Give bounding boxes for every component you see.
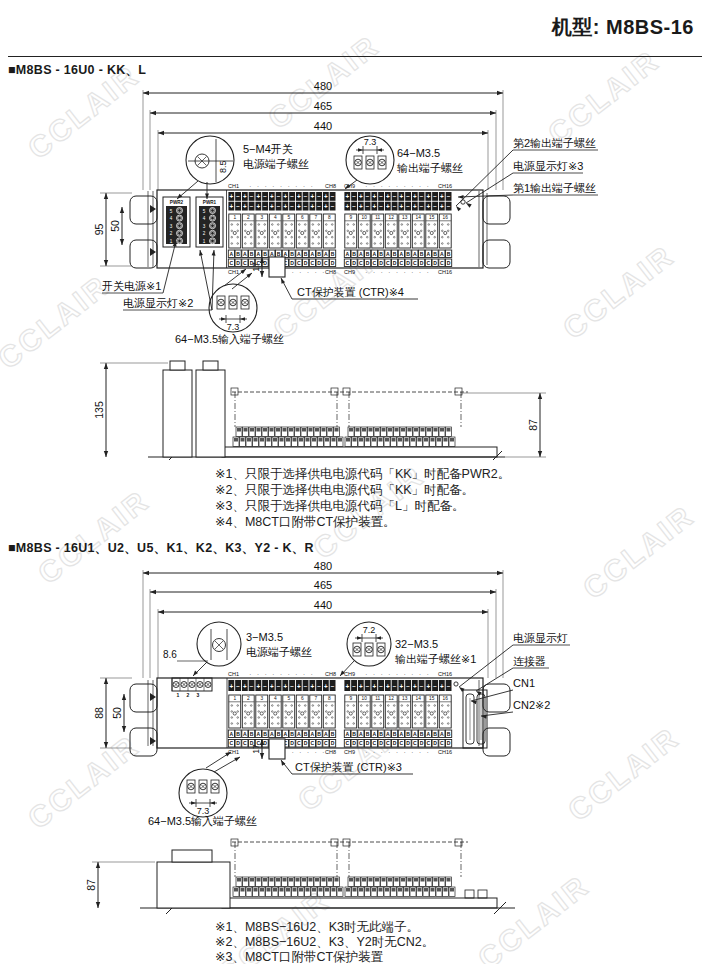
svg-text:+: + (373, 683, 377, 690)
svg-text:5: 5 (287, 696, 290, 701)
svg-text:D: D (352, 740, 356, 746)
svg-text:−: − (290, 203, 294, 210)
svg-text:D: D (263, 740, 267, 746)
svg-text:C: C (440, 260, 444, 266)
svg-text:B: B (304, 251, 308, 257)
svg-text:4: 4 (170, 216, 173, 221)
note-line: ※1、只限于选择供电电源代码「KK」时配备PWR2。 (215, 466, 510, 482)
svg-text:+: + (324, 683, 328, 690)
svg-text:−: − (263, 193, 267, 200)
svg-text:CH8: CH8 (325, 749, 336, 755)
svg-text:CH16: CH16 (438, 749, 452, 755)
svg-text:A: A (359, 251, 363, 257)
svg-text:CH8: CH8 (325, 671, 336, 677)
svg-text:−: − (447, 683, 451, 690)
svg-text:PWR2: PWR2 (170, 200, 184, 205)
svg-text:+: + (359, 203, 363, 210)
svg-text:电源端子螺丝: 电源端子螺丝 (243, 158, 309, 170)
svg-text:−: − (420, 193, 424, 200)
svg-text:−: − (236, 203, 240, 210)
svg-text:−: − (304, 203, 308, 210)
svg-text:−: − (420, 683, 424, 690)
svg-text:+: + (297, 683, 301, 690)
svg-text:A: A (324, 731, 328, 737)
svg-text:B: B (331, 251, 335, 257)
dim-label: 8.6 (163, 649, 177, 660)
svg-text:C: C (400, 740, 404, 746)
svg-text:B: B (393, 731, 397, 737)
svg-text:A: A (413, 251, 417, 257)
svg-text:14: 14 (416, 696, 422, 701)
svg-text:−: − (352, 683, 356, 690)
svg-text:−: − (447, 203, 451, 210)
svg-text:4: 4 (274, 696, 277, 701)
svg-text:输出端子螺丝: 输出端子螺丝 (397, 162, 463, 174)
svg-text:B: B (379, 731, 383, 737)
svg-text:+: + (230, 203, 234, 210)
svg-text:A: A (257, 251, 261, 257)
svg-text:+: + (230, 683, 234, 690)
svg-text:+: + (400, 203, 404, 210)
svg-text:D: D (290, 740, 294, 746)
dim-label: 87 (527, 419, 539, 431)
note-line: ※3、只限于选择供电电源代码「L」时配备。 (215, 498, 510, 514)
svg-text:D: D (331, 740, 335, 746)
svg-text:B: B (236, 251, 240, 257)
svg-text:−: − (304, 683, 308, 690)
channel-area: +−+−+−+−+−+−+−+−12345678ABABABABABABABAB… (228, 680, 451, 747)
svg-text:+: + (346, 203, 350, 210)
svg-text:B: B (433, 251, 437, 257)
svg-text:CH16: CH16 (438, 183, 452, 189)
svg-text:B: B (433, 731, 437, 737)
label-cn1: CN1 (513, 677, 535, 689)
svg-text:B: B (290, 731, 294, 737)
svg-text:· · · · · · · · ·: · · · · · · · · · (365, 749, 430, 755)
dim-label: 87 (85, 879, 97, 891)
svg-text:−: − (393, 683, 397, 690)
svg-text:CH9: CH9 (344, 749, 355, 755)
svg-text:A: A (230, 731, 234, 737)
svg-text:11: 11 (375, 215, 380, 220)
header-rule (8, 56, 702, 57)
svg-text:+: + (270, 203, 274, 210)
svg-text:−: − (263, 203, 267, 210)
svg-text:−: − (317, 203, 321, 210)
callout-power-screws: 8.63−M3.5电源端子螺丝 (163, 622, 312, 677)
svg-text:A: A (311, 731, 315, 737)
svg-text:−: − (366, 683, 370, 690)
svg-text:8: 8 (328, 696, 331, 701)
svg-text:D: D (366, 740, 370, 746)
front-view: PWR254321PWR154321+−+−+−+−+−+−+−+−+−+−+−… (130, 183, 510, 275)
svg-text:5: 5 (170, 209, 173, 214)
svg-text:−: − (331, 683, 335, 690)
svg-text:B: B (379, 251, 383, 257)
svg-text:D: D (379, 260, 383, 266)
section1-notes: ※1、只限于选择供电电源代码「KK」时配备PWR2。 ※2、只限于选择供电电源代… (215, 466, 510, 530)
svg-text:D: D (406, 740, 410, 746)
svg-text:B: B (304, 731, 308, 737)
svg-text:B: B (236, 731, 240, 737)
right-labels: 第2输出端子螺丝电源显示灯※3第1输出端子螺丝 (455, 137, 598, 211)
svg-text:· · · · ·: · · · · · (292, 749, 327, 755)
dim-label: 7.3 (227, 322, 240, 332)
dim-label: 440 (314, 120, 332, 132)
svg-text:8: 8 (328, 215, 331, 220)
svg-text:A: A (230, 251, 234, 257)
svg-text:A: A (243, 731, 247, 737)
svg-text:1: 1 (233, 696, 236, 701)
svg-text:−: − (379, 193, 383, 200)
svg-text:7: 7 (314, 215, 317, 220)
dim-label: 480 (314, 560, 332, 572)
svg-text:D: D (379, 740, 383, 746)
svg-text:D: D (331, 260, 335, 266)
svg-text:+: + (311, 683, 315, 690)
svg-text:2: 2 (203, 231, 206, 236)
svg-text:A: A (297, 731, 301, 737)
svg-text:−: − (379, 203, 383, 210)
power-terminal-strip: 123 (172, 678, 212, 698)
svg-text:D: D (352, 260, 356, 266)
svg-text:−: − (317, 683, 321, 690)
svg-text:C: C (243, 260, 247, 266)
svg-text:B: B (352, 251, 356, 257)
svg-text:3: 3 (260, 215, 263, 220)
svg-text:+: + (257, 203, 261, 210)
svg-text:A: A (427, 251, 431, 257)
svg-text:A: A (386, 251, 390, 257)
svg-text:−: − (331, 193, 335, 200)
svg-text:D: D (406, 260, 410, 266)
callout-switch-power-screws: 8.55−M4开关电源端子螺丝 (176, 136, 309, 200)
svg-text:CH1: CH1 (228, 671, 239, 677)
svg-text:C: C (230, 260, 234, 266)
svg-text:电源端子螺丝: 电源端子螺丝 (246, 646, 312, 658)
svg-text:A: A (243, 251, 247, 257)
svg-text:A: A (270, 731, 274, 737)
dim-95: 95 (93, 193, 108, 266)
svg-text:D: D (290, 260, 294, 266)
svg-text:14: 14 (416, 215, 422, 220)
svg-text:−: − (250, 683, 254, 690)
svg-text:B: B (352, 731, 356, 737)
svg-text:16: 16 (443, 696, 449, 701)
svg-text:2: 2 (187, 692, 190, 698)
svg-text:CT保护装置 (CTR)※4: CT保护装置 (CTR)※4 (297, 286, 404, 298)
svg-text:+: + (230, 193, 234, 200)
svg-text:B: B (406, 251, 410, 257)
svg-text:C: C (386, 260, 390, 266)
svg-text:A: A (257, 731, 261, 737)
dim-label: 7.2 (363, 625, 376, 635)
svg-text:+: + (427, 683, 431, 690)
svg-text:+: + (413, 193, 417, 200)
label-cn2: CN2※2 (513, 699, 550, 711)
svg-text:+: + (359, 683, 363, 690)
svg-text:−: − (433, 683, 437, 690)
svg-text:−: − (236, 193, 240, 200)
section2-notes: ※1、M8BS−16U2、K3时无此端子。 ※2、M8BS−16U2、K3、Y2… (215, 920, 434, 964)
svg-text:C: C (324, 260, 328, 266)
svg-text:CH16: CH16 (438, 671, 452, 677)
dim-label: 7.3 (364, 137, 377, 147)
svg-text:C: C (386, 740, 390, 746)
svg-text:3: 3 (260, 696, 263, 701)
svg-text:3: 3 (170, 224, 173, 229)
svg-text:D: D (366, 260, 370, 266)
svg-text:C: C (346, 260, 350, 266)
svg-text:7: 7 (314, 696, 317, 701)
svg-text:A: A (373, 251, 377, 257)
svg-text:13: 13 (402, 215, 408, 220)
svg-text:−: − (304, 193, 308, 200)
svg-text:64−M3.5: 64−M3.5 (397, 147, 440, 159)
label-output1-screws: 第1输出端子螺丝 (513, 182, 596, 194)
svg-text:−: − (420, 203, 424, 210)
svg-text:B: B (393, 251, 397, 257)
svg-text:12: 12 (389, 696, 395, 701)
svg-text:C: C (297, 260, 301, 266)
svg-text:D: D (393, 260, 397, 266)
svg-text:D: D (393, 740, 397, 746)
datasheet-page: CCLAIRCCLAIRCCLAIRCCLAIRCCLAIRCCLAIRCCLA… (0, 0, 710, 964)
svg-text:CH1: CH1 (228, 749, 239, 755)
svg-text:C: C (230, 740, 234, 746)
svg-text:B: B (366, 251, 370, 257)
svg-text:D: D (317, 260, 321, 266)
svg-text:+: + (311, 203, 315, 210)
svg-text:C: C (297, 740, 301, 746)
svg-text:+: + (284, 203, 288, 210)
svg-text:−: − (433, 193, 437, 200)
svg-text:· · · · · · · · ·: · · · · · · · · · (249, 671, 314, 677)
dim-label: 135 (93, 401, 105, 419)
svg-text:C: C (427, 740, 431, 746)
svg-text:B: B (277, 731, 281, 737)
svg-text:+: + (440, 683, 444, 690)
svg-text:−: − (263, 683, 267, 690)
svg-text:B: B (250, 251, 254, 257)
label-output2-screws: 第2输出端子螺丝 (513, 137, 596, 149)
dim-50b: 50 (111, 694, 126, 732)
svg-text:D: D (317, 740, 321, 746)
svg-text:−: − (379, 683, 383, 690)
pwr-block: PWR254321 (163, 197, 190, 247)
dim-label: 88 (93, 707, 105, 719)
label-power-lamp2: 电源显示灯※2 (123, 297, 193, 309)
svg-text:· · · · · · · · ·: · · · · · · · · · (249, 183, 314, 189)
svg-text:C: C (373, 740, 377, 746)
svg-text:A: A (440, 251, 444, 257)
pwr-block: PWR154321 (196, 197, 223, 247)
drawing-m8bs-16u1: 480465440123+−+−+−+−+−+−+−+−12345678ABAB… (0, 558, 710, 920)
side-view (140, 839, 515, 914)
svg-text:+: + (270, 193, 274, 200)
label-switch-power: 开关电源※1 (102, 280, 161, 292)
svg-text:A: A (324, 251, 328, 257)
svg-text:+: + (400, 193, 404, 200)
svg-text:A: A (400, 251, 404, 257)
svg-text:−: − (317, 193, 321, 200)
svg-text:−: − (250, 203, 254, 210)
left-labels: 开关电源※1电源显示灯※2 (102, 240, 216, 310)
callout-output-screws: 7.232−M3.5输出端子螺丝※1 (338, 622, 476, 677)
dim-label: 17 (251, 262, 261, 272)
svg-text:C: C (440, 740, 444, 746)
svg-text:+: + (346, 193, 350, 200)
svg-text:3: 3 (203, 224, 206, 229)
svg-text:C: C (311, 260, 315, 266)
svg-text:C: C (427, 260, 431, 266)
svg-text:A: A (270, 251, 274, 257)
section1-title: ■M8BS - 16U0 - KK、L (8, 62, 146, 79)
svg-text:A: A (413, 731, 417, 737)
svg-text:CH9: CH9 (344, 671, 355, 677)
svg-text:B: B (420, 251, 424, 257)
svg-text:15: 15 (429, 215, 435, 220)
svg-text:1: 1 (203, 239, 206, 244)
svg-text:A: A (386, 731, 390, 737)
svg-text:−: − (352, 203, 356, 210)
svg-text:D: D (433, 740, 437, 746)
channel-area: +−+−+−+−+−+−+−+−+−+−+−+−+−+−+−+−12345678… (228, 192, 451, 267)
svg-text:5−M4开关: 5−M4开关 (243, 143, 293, 155)
svg-text:输出端子螺丝※1: 输出端子螺丝※1 (395, 653, 476, 665)
note-line: ※1、M8BS−16U2、K3时无此端子。 (215, 920, 434, 935)
svg-text:2: 2 (247, 696, 250, 701)
note-line: ※3、M8CT口附带CT保护装置 (215, 950, 434, 964)
dim-label: 440 (314, 599, 332, 611)
label-power-lamp: 电源显示灯 (513, 632, 568, 644)
svg-text:4: 4 (274, 215, 277, 220)
svg-text:CH8: CH8 (325, 183, 336, 189)
svg-text:C: C (346, 740, 350, 746)
svg-text:+: + (413, 683, 417, 690)
side-view (148, 361, 505, 460)
svg-text:B: B (290, 251, 294, 257)
dim-87b: 87 (85, 862, 100, 908)
svg-text:15: 15 (429, 696, 435, 701)
dim-50: 50 (109, 207, 124, 245)
svg-text:B: B (317, 251, 321, 257)
svg-text:B: B (366, 731, 370, 737)
dim-87a: 87 (527, 393, 542, 457)
svg-text:1: 1 (170, 239, 173, 244)
ct-label: CT保护装置 (CTR)※4 (279, 277, 418, 299)
svg-text:+: + (386, 193, 390, 200)
svg-text:+: + (386, 683, 390, 690)
svg-text:B: B (447, 251, 451, 257)
svg-text:C: C (400, 260, 404, 266)
svg-text:+: + (324, 203, 328, 210)
svg-text:−: − (393, 193, 397, 200)
svg-text:· · · · ·: · · · · · (292, 269, 327, 275)
svg-text:+: + (257, 193, 261, 200)
svg-text:−: − (406, 683, 410, 690)
svg-text:+: + (297, 203, 301, 210)
svg-text:+: + (373, 193, 377, 200)
svg-text:4: 4 (203, 216, 206, 221)
dim-label: 465 (314, 100, 332, 112)
svg-text:−: − (366, 203, 370, 210)
svg-text:B: B (317, 731, 321, 737)
svg-text:A: A (346, 251, 350, 257)
svg-text:D: D (447, 260, 451, 266)
svg-text:−: − (290, 683, 294, 690)
svg-text:· · · · · · · · ·: · · · · · · · · · (365, 269, 430, 275)
dim-88: 88 (93, 678, 108, 748)
svg-text:+: + (311, 193, 315, 200)
svg-text:C: C (413, 740, 417, 746)
svg-text:CH1: CH1 (228, 183, 239, 189)
ch-labels-top: CH1· · · · · · · · ·CH8CH9· · · · · · · … (228, 183, 452, 189)
svg-text:9: 9 (349, 215, 352, 220)
svg-text:−: − (352, 193, 356, 200)
svg-text:A: A (373, 731, 377, 737)
svg-text:11: 11 (375, 696, 380, 701)
dim-label: 50 (111, 707, 123, 719)
svg-text:−: − (331, 203, 335, 210)
svg-text:A: A (311, 251, 315, 257)
drawing-m8bs-16u0: 480465440PWR254321PWR154321+−+−+−+−+−+−+… (0, 80, 710, 460)
svg-text:−: − (277, 193, 281, 200)
svg-text:D: D (447, 740, 451, 746)
svg-text:5: 5 (287, 215, 290, 220)
svg-text:D: D (304, 740, 308, 746)
svg-text:B: B (250, 731, 254, 737)
svg-text:+: + (284, 193, 288, 200)
right-labels: 电源显示灯连接器CN1CN2※2 (458, 632, 570, 719)
svg-text:+: + (257, 683, 261, 690)
svg-text:6: 6 (301, 696, 304, 701)
note-line: ※2、M8BS−16U2、K3、Y2时无CN2。 (215, 935, 434, 950)
svg-text:A: A (359, 731, 363, 737)
svg-text:CH1: CH1 (228, 269, 239, 275)
svg-text:16: 16 (443, 215, 449, 220)
dim-label: 465 (314, 579, 332, 591)
svg-text:+: + (373, 203, 377, 210)
callout-input-screws: 7.364−M3.5输入端子螺丝 (148, 750, 257, 827)
svg-text:C: C (373, 260, 377, 266)
svg-text:64−M3.5输入端子螺丝: 64−M3.5输入端子螺丝 (175, 333, 284, 345)
svg-text:+: + (440, 203, 444, 210)
svg-text:D: D (236, 740, 240, 746)
svg-text:B: B (277, 251, 281, 257)
svg-text:10: 10 (362, 696, 368, 701)
svg-text:−: − (290, 193, 294, 200)
svg-text:A: A (284, 731, 288, 737)
svg-text:A: A (440, 731, 444, 737)
svg-text:C: C (243, 740, 247, 746)
dim-label: 95 (93, 224, 105, 236)
svg-text:· · · · · · · · ·: · · · · · · · · · (365, 671, 430, 677)
svg-text:−: − (277, 683, 281, 690)
svg-text:−: − (366, 193, 370, 200)
svg-text:9: 9 (349, 696, 352, 701)
dim-label: 7.3 (197, 806, 210, 816)
svg-text:5: 5 (203, 209, 206, 214)
svg-text:B: B (263, 251, 267, 257)
svg-text:CH9: CH9 (344, 269, 355, 275)
svg-text:C: C (359, 740, 363, 746)
svg-text:C: C (359, 260, 363, 266)
svg-text:−: − (447, 193, 451, 200)
dim-label: 8.5 (218, 160, 228, 173)
svg-text:+: + (359, 193, 363, 200)
front-view: 123+−+−+−+−+−+−+−+−12345678ABABABABABABA… (130, 671, 510, 757)
